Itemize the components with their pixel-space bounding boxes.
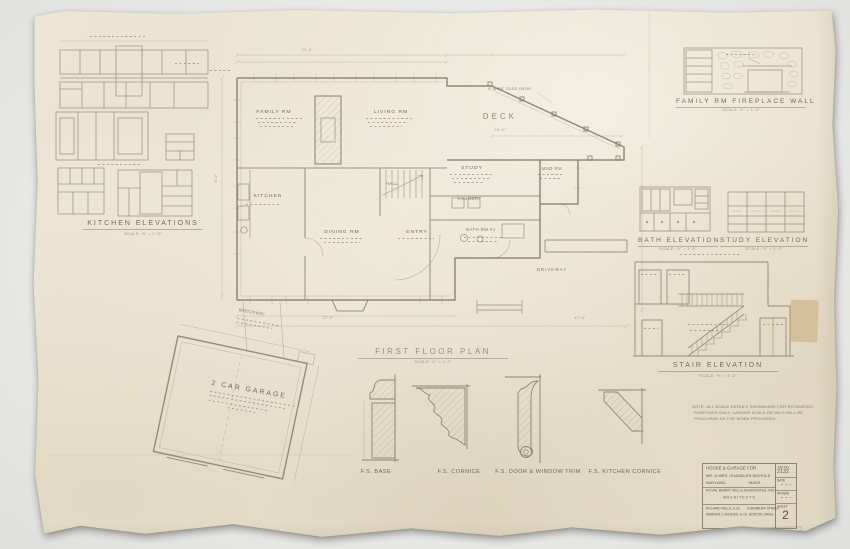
detail-label-door-trim: F.S. DOOR & WINDOW TRIM [494,469,582,475]
bath-elevation-scale: SCALE: ½" = 1'-0" [658,247,698,251]
illegible-note [644,328,658,329]
title-block-rule [703,504,775,505]
stair-elevation-scale: SCALE: ½" = 1'-0" [688,374,748,378]
illegible-note [538,174,564,175]
illegible-note [781,484,791,485]
room-label-driveway: DRIVEWAY [531,268,573,273]
patio-note: 4' WIDE TILED PATIO [488,87,531,91]
illegible-note [688,324,728,325]
bath-elevation-linework [640,187,710,231]
sheet-number: 2 [775,508,796,522]
room-label-study: STUDY [447,165,497,170]
dimension-label: 16'-6" [489,128,511,132]
stair-elevation-title: STAIR ELEVATION [658,362,778,372]
illegible-note [258,122,298,123]
illegible-note [690,330,722,331]
drawing-sheet-wrap: KITCHEN ELEVATIONS SCALE: ½" = 1'-0" FAM… [32,8,838,539]
room-label-family: FAMILY RM [249,109,299,114]
detail-label-cornice: F.S. CORNICE [427,469,491,475]
illegible-note [90,36,146,37]
room-label-deck: DECK [469,113,531,122]
illegible-note [398,238,434,239]
general-note-line3: PROCURED AS THE WORK PROCEEDS. [694,417,776,421]
fireplace-detail-scale: SCALE: ½" = 1'-0" [709,108,774,112]
illegible-note [669,274,685,275]
room-label-dining: DINING RM [317,229,367,234]
illegible-note [464,237,502,238]
credit-1: RICHARD WILLS, A.I.A. [706,507,741,510]
illegible-note [320,238,364,239]
study-elevation-scale: SCALE: ½" = 1'-0" [742,247,786,251]
illegible-note [680,254,740,255]
kitchen-elevations-scale: SCALE: ½" = 1'-0" [113,232,173,236]
illegible-note [763,324,783,325]
illegible-note [260,126,294,127]
study-elevation-linework [728,192,804,232]
dimension-label: 23'-4" [296,48,318,52]
firm-subtitle: A R C H I T E C T S [723,496,755,500]
kitchen-elevations-title: KITCHEN ELEVATIONS [83,220,203,230]
date-label: DATE [777,479,785,482]
job-number: 2132 [777,469,789,474]
firm-name: ROYAL BARRY WILLS ASSOCIATES, INC [706,489,775,493]
drawn-label: DRAWN [777,492,789,495]
room-label-kitchen: KITCHEN [243,193,293,198]
detail-label-kitchen-cornice: F.S. KITCHEN CORNICE [581,469,669,475]
room-label-living: LIVING RM [366,109,416,114]
illegible-note [370,126,402,127]
floor-plan-scale: SCALE: ¼" = 1'-0" [396,360,471,364]
stair-elevation-linework [633,262,794,356]
kitchen-elevations-linework [56,41,208,216]
illegible-note [540,178,562,179]
archive-stamp: D-600 [746,526,802,541]
photo-backdrop: KITCHEN ELEVATIONS SCALE: ½" = 1'-0" FAM… [0,0,850,549]
dimension-label: 9'-0" [214,167,218,189]
drawing-sheet: KITCHEN ELEVATIONS SCALE: ½" = 1'-0" FAM… [32,8,838,539]
detail-label-base: F.S. BASE [344,469,408,475]
illegible-note [246,204,280,205]
illegible-note [452,178,490,179]
pencil-linework [32,8,838,539]
illegible-note [210,70,232,71]
project-state: MASS. [749,481,761,485]
floor-plan-title: FIRST FLOOR PLAN [358,348,508,359]
illegible-note [256,118,302,119]
general-note-line2: PURPOSES ONLY. LARGER SCALE DETAILS WILL… [694,411,803,415]
dimension-label: 12'-0" [317,316,339,320]
illegible-note [781,497,791,498]
general-note-line1: NOTE: ALL SCALE DETAILS SHOWN ARE FOR ES… [692,405,814,409]
dimension-label: 47'-6" [569,316,591,320]
illegible-note [98,164,142,165]
illegible-note [454,182,484,183]
illegible-note [450,174,494,175]
fireplace-detail-title: FAMILY RM FIREPLACE WALL [676,98,806,108]
room-label-entry: ENTRY [392,229,442,234]
project-line1: HOUSE & GARAGE FOR [706,466,756,470]
study-elevation-title: STUDY ELEVATION [720,237,808,247]
tape-stain-patch [789,300,818,343]
room-label-laundry: LAUNDRY [449,197,491,202]
molding-details-linework [362,374,646,463]
floor-plan-interior-walls [237,82,627,314]
illegible-note [726,54,756,55]
credit-2: WARREN J. RHODES, A.I.A. [706,513,747,516]
floor-plan-dimension-lines [220,53,644,358]
illegible-note [324,242,360,243]
project-line2: MR. & MRS. CHANDLER NICHOLS [706,474,770,478]
illegible-note [641,274,657,275]
illegible-note [366,118,412,119]
illegible-note [468,241,498,242]
project-city: WAYLAND, [706,481,726,485]
title-block: HOUSE & GARAGE FOR MR. & MRS. CHANDLER N… [702,463,797,529]
illegible-note [368,122,408,123]
room-label-bath: BATH RM #1 [460,228,502,233]
room-label-mud: MUD RM [531,167,573,172]
room-label-hall: HALL [371,182,413,187]
bath-elevation-title: BATH ELEVATION [638,237,718,247]
firm-address-2: BOSTON, MASS. [749,513,774,516]
illegible-note [175,63,201,64]
